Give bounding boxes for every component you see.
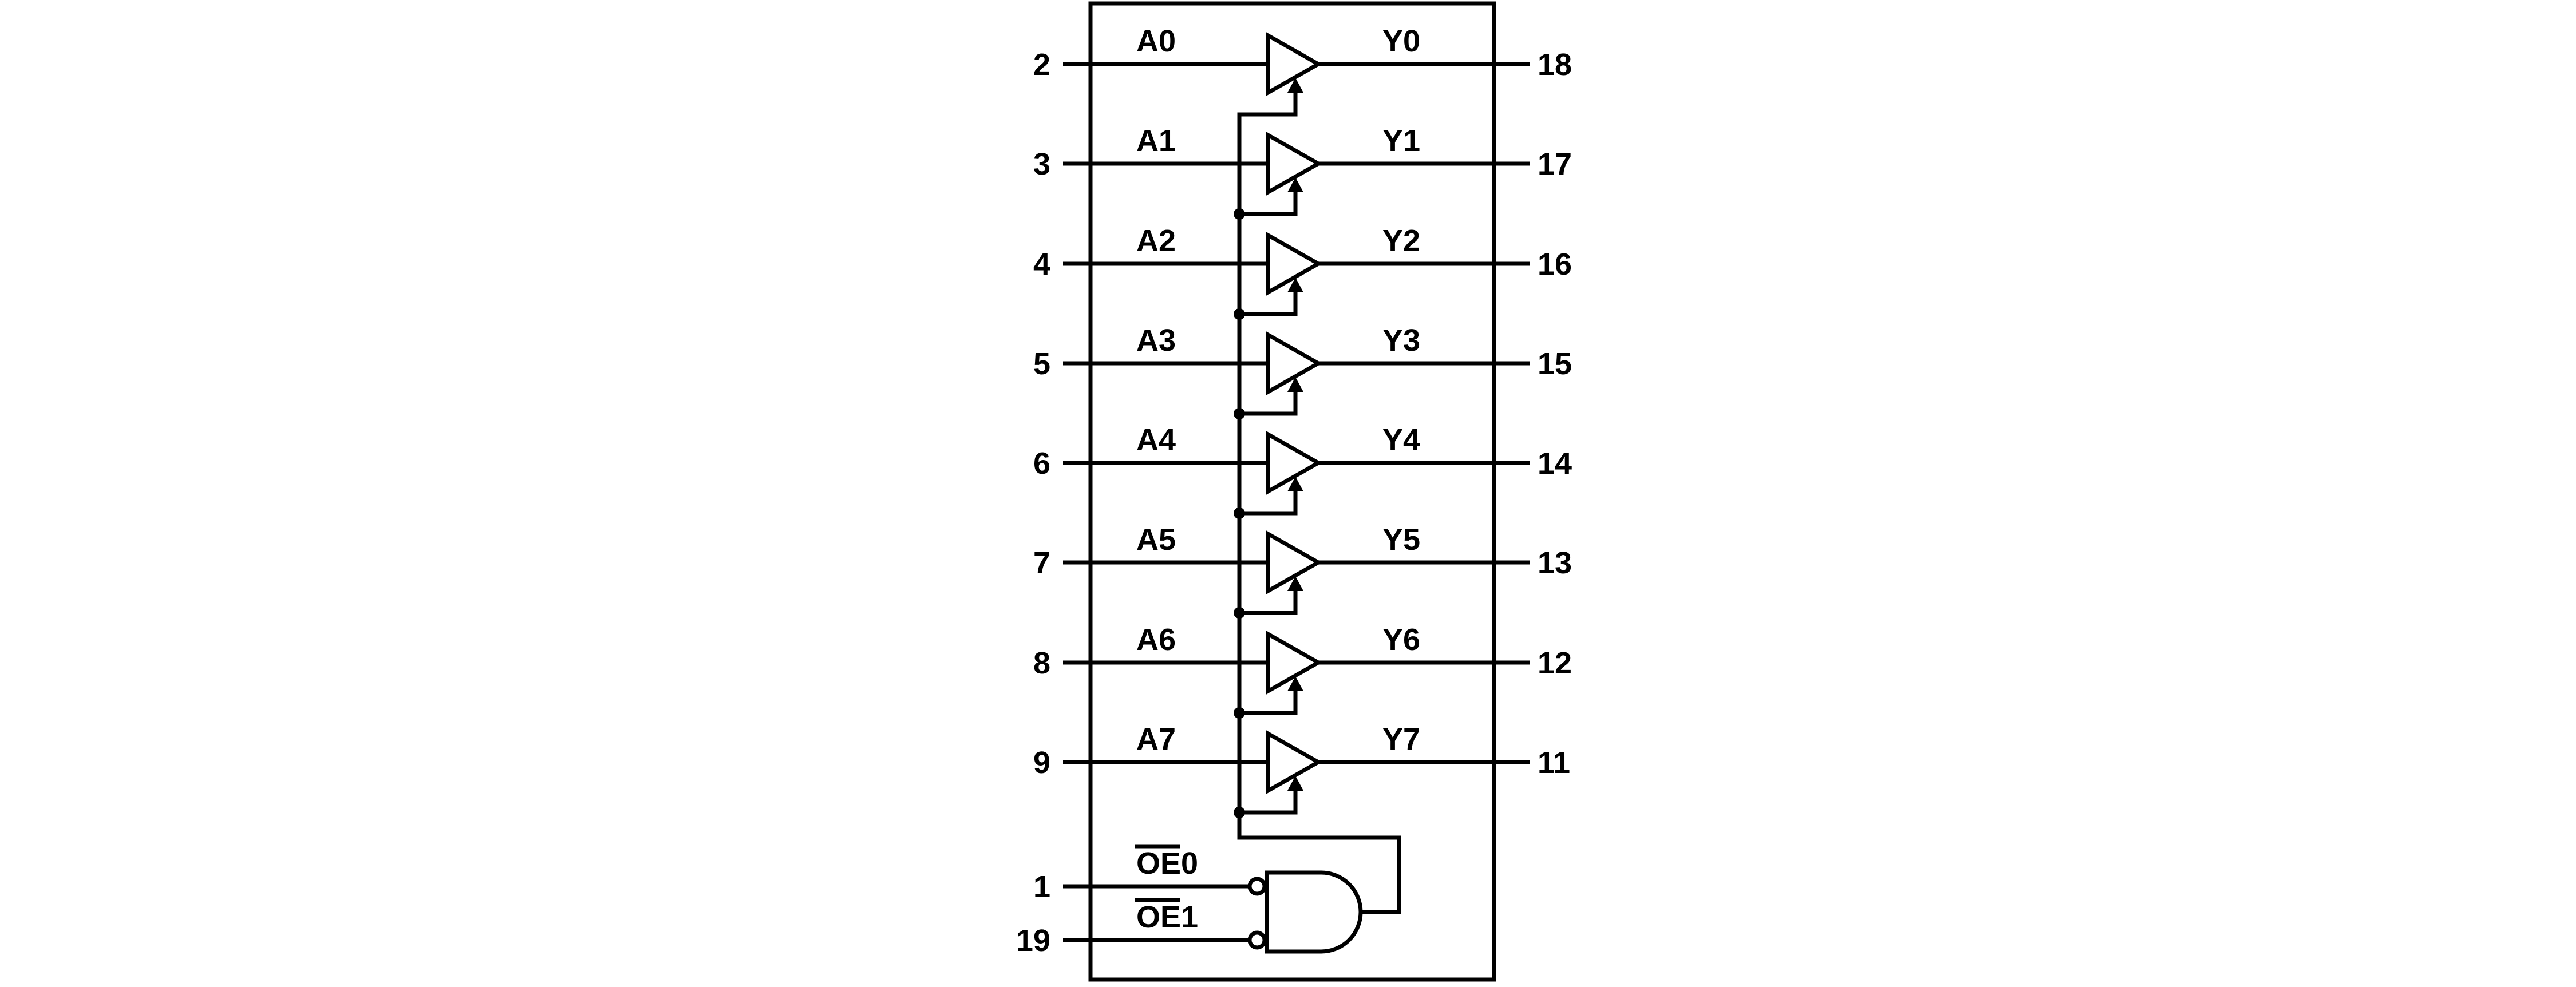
buffer-row: 2 A0 Y0 18 bbox=[1033, 24, 1572, 93]
input-pin-number: 8 bbox=[1033, 646, 1050, 680]
input-label: A6 bbox=[1136, 623, 1176, 657]
junction-dot bbox=[1234, 308, 1245, 320]
oe1-label: OE1 bbox=[1136, 900, 1198, 934]
enable-branch-wire bbox=[1239, 292, 1295, 314]
output-enable-section: 1 OE0 19 OE1 bbox=[1016, 846, 1361, 958]
junction-dot bbox=[1234, 508, 1245, 519]
oe1-pin-number: 19 bbox=[1016, 923, 1050, 958]
input-pin-number: 9 bbox=[1033, 746, 1050, 780]
inverter-bubble-icon bbox=[1250, 879, 1265, 894]
buffer-row: 7 A5 Y5 13 bbox=[1033, 522, 1572, 619]
oe0-pin-number: 1 bbox=[1033, 870, 1050, 904]
logic-diagram-page: 2 A0 Y0 18 3 A1 Y1 17 4 A2 Y2 16 bbox=[0, 0, 2576, 987]
output-label: Y6 bbox=[1382, 623, 1420, 657]
input-label: A3 bbox=[1136, 323, 1176, 358]
junction-dot bbox=[1234, 607, 1245, 619]
output-pin-number: 13 bbox=[1538, 546, 1572, 580]
input-pin-number: 3 bbox=[1033, 147, 1050, 181]
buffer-row: 3 A1 Y1 17 bbox=[1033, 124, 1572, 220]
junction-dot bbox=[1234, 208, 1245, 220]
buffer-row: 6 A4 Y4 14 bbox=[1033, 423, 1572, 519]
buffer-row: 5 A3 Y3 15 bbox=[1033, 323, 1572, 419]
output-pin-number: 11 bbox=[1538, 746, 1570, 780]
output-label: Y3 bbox=[1382, 323, 1420, 358]
enable-branch-wire bbox=[1239, 491, 1295, 513]
output-pin-number: 18 bbox=[1538, 47, 1572, 82]
input-label: A0 bbox=[1136, 24, 1176, 58]
input-label: A2 bbox=[1136, 224, 1176, 258]
junction-dot bbox=[1234, 408, 1245, 419]
junction-dot bbox=[1234, 807, 1245, 818]
output-pin-number: 16 bbox=[1538, 247, 1572, 282]
output-label: Y5 bbox=[1382, 522, 1420, 557]
input-pin-number: 2 bbox=[1033, 47, 1050, 82]
output-pin-number: 15 bbox=[1538, 347, 1572, 381]
input-pin-number: 5 bbox=[1033, 347, 1050, 381]
output-pin-number: 12 bbox=[1538, 646, 1572, 680]
junction-dot bbox=[1234, 707, 1245, 719]
input-label: A1 bbox=[1136, 124, 1176, 158]
input-label: A7 bbox=[1136, 722, 1176, 756]
input-pin-number: 7 bbox=[1033, 546, 1050, 580]
buffer-row: 8 A6 Y6 12 bbox=[1033, 623, 1572, 719]
buffer-row: 4 A2 Y2 16 bbox=[1033, 224, 1572, 320]
output-pin-number: 14 bbox=[1538, 446, 1572, 481]
output-label: Y0 bbox=[1382, 24, 1420, 58]
input-label: A4 bbox=[1136, 423, 1176, 457]
buffer-row: 9 A7 Y7 11 bbox=[1033, 722, 1570, 818]
oe0-label: OE0 bbox=[1136, 846, 1198, 881]
logic-diagram-canvas: 2 A0 Y0 18 3 A1 Y1 17 4 A2 Y2 16 bbox=[0, 0, 2576, 987]
enable-branch-wire bbox=[1239, 691, 1295, 713]
enable-branch-wire bbox=[1239, 790, 1295, 812]
enable-branch-wire bbox=[1239, 192, 1295, 214]
inverter-bubble-icon bbox=[1250, 933, 1265, 948]
input-label: A5 bbox=[1136, 522, 1176, 557]
enable-branch-wire bbox=[1239, 391, 1295, 414]
input-pin-number: 4 bbox=[1033, 247, 1050, 282]
output-label: Y2 bbox=[1382, 224, 1420, 258]
input-pin-number: 6 bbox=[1033, 446, 1050, 481]
output-label: Y1 bbox=[1382, 124, 1420, 158]
output-pin-number: 17 bbox=[1538, 147, 1572, 181]
and-gate bbox=[1267, 873, 1361, 952]
output-label: Y7 bbox=[1382, 722, 1420, 756]
enable-branch-wire bbox=[1239, 590, 1295, 613]
output-label: Y4 bbox=[1382, 423, 1420, 457]
